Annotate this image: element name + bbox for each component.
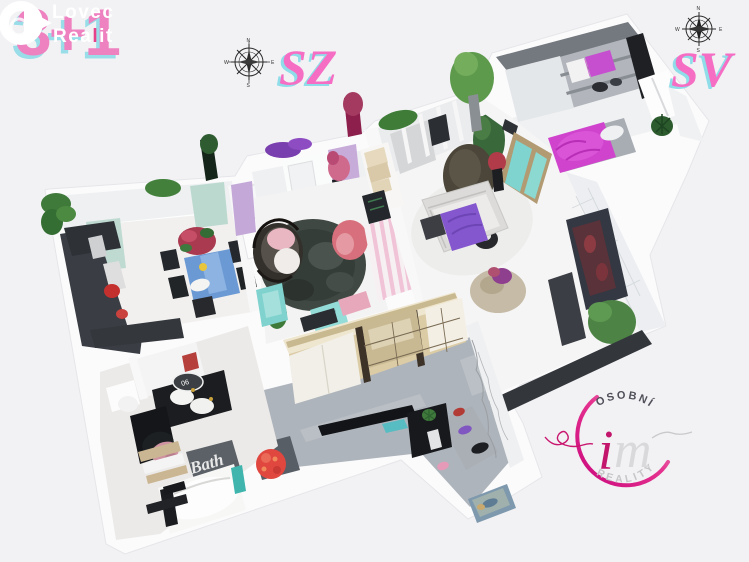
svg-text:Lovec: Lovec <box>52 2 114 23</box>
svg-text:SV: SV <box>671 41 736 97</box>
svg-text:N: N <box>247 38 251 44</box>
svg-text:SZ: SZ <box>279 39 337 95</box>
svg-text:i: i <box>598 420 614 482</box>
svg-text:W: W <box>224 60 229 66</box>
svg-text:Realit: Realit <box>53 26 114 47</box>
svg-text:N: N <box>697 6 701 12</box>
svg-text:m: m <box>614 422 652 479</box>
svg-text:W: W <box>675 27 680 33</box>
